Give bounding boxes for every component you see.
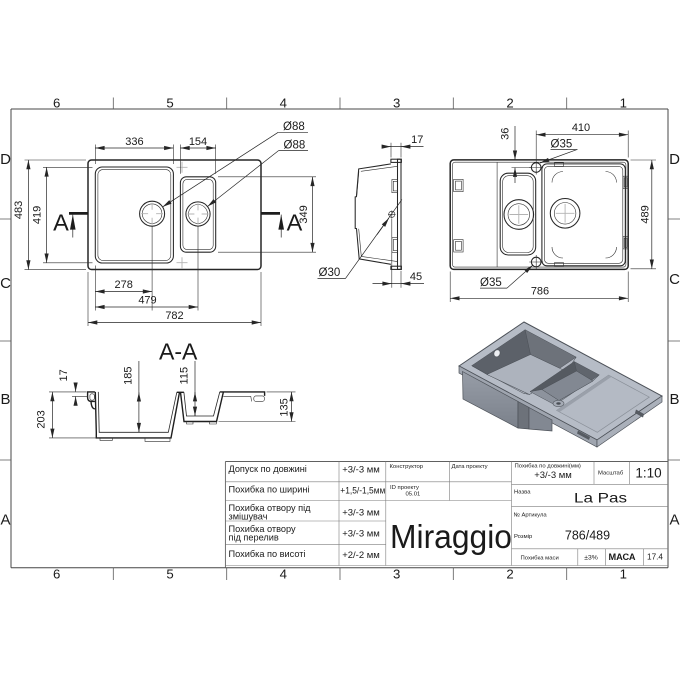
svg-text:4: 4 (280, 95, 287, 110)
svg-text:змішувач: змішувач (229, 511, 268, 521)
svg-text:2: 2 (506, 95, 513, 110)
svg-text:МАСА: МАСА (608, 552, 635, 562)
svg-text:1:10: 1:10 (635, 466, 661, 481)
svg-text:Ø88: Ø88 (284, 139, 306, 151)
svg-text:782: 782 (165, 310, 183, 322)
svg-text:479: 479 (138, 294, 156, 306)
svg-text:+3/-3 мм: +3/-3 мм (342, 507, 380, 518)
svg-text:278: 278 (115, 279, 133, 291)
svg-text:A: A (287, 210, 303, 236)
svg-text:05.01: 05.01 (406, 492, 421, 498)
svg-text:336: 336 (125, 136, 143, 148)
svg-text:Ø35: Ø35 (551, 139, 573, 151)
svg-text:Дата проекту: Дата проекту (452, 464, 488, 470)
svg-text:C: C (0, 275, 11, 292)
svg-text:Масштаб: Масштаб (598, 471, 624, 477)
svg-text:Похибка маси: Похибка маси (521, 556, 559, 562)
svg-text:+3/-3 мм: +3/-3 мм (342, 465, 380, 476)
svg-text:36: 36 (499, 128, 511, 140)
svg-text:Розмір: Розмір (514, 534, 533, 540)
svg-text:Похибка по ширині: Похибка по ширині (229, 485, 310, 495)
svg-text:154: 154 (189, 136, 207, 148)
svg-text:786/489: 786/489 (565, 529, 610, 543)
svg-text:45: 45 (410, 271, 422, 283)
svg-text:3: 3 (393, 95, 400, 110)
svg-text:Ø30: Ø30 (319, 267, 341, 279)
svg-text:3: 3 (393, 567, 400, 582)
svg-text:B: B (0, 391, 10, 408)
svg-text:419: 419 (31, 206, 43, 224)
svg-text:ID проекту: ID проекту (390, 485, 419, 491)
svg-text:185: 185 (123, 367, 135, 385)
svg-text:1: 1 (620, 95, 627, 110)
svg-text:786: 786 (531, 286, 549, 298)
svg-text:483: 483 (13, 201, 25, 219)
svg-text:410: 410 (572, 122, 590, 134)
svg-text:D: D (0, 151, 11, 168)
svg-text:Ø88: Ø88 (283, 121, 305, 133)
svg-text:+3/-3 мм: +3/-3 мм (342, 529, 380, 540)
svg-text:±3%: ±3% (584, 555, 598, 562)
svg-text:17: 17 (58, 369, 70, 381)
svg-text:1: 1 (620, 567, 627, 582)
svg-text:17.4: 17.4 (647, 553, 663, 562)
svg-text:203: 203 (36, 410, 48, 428)
svg-text:489: 489 (639, 205, 651, 223)
svg-text:Ø35: Ø35 (480, 277, 502, 289)
svg-text:+3/-3 мм: +3/-3 мм (534, 470, 572, 481)
svg-text:La Pas: La Pas (574, 490, 627, 506)
svg-text:115: 115 (179, 367, 191, 385)
svg-text:D: D (669, 151, 680, 168)
svg-text:Похибка по висоті: Похибка по висоті (229, 549, 306, 559)
svg-text:Назва: Назва (514, 490, 531, 496)
svg-text:№ Артикула: № Артикула (514, 512, 548, 519)
svg-text:A: A (669, 512, 679, 529)
svg-text:A: A (0, 512, 10, 529)
svg-text:+2/-2 мм: +2/-2 мм (342, 550, 380, 561)
svg-text:B: B (669, 391, 679, 408)
svg-text:A: A (53, 210, 69, 236)
svg-text:A-A: A-A (159, 339, 198, 365)
svg-text:135: 135 (279, 398, 291, 416)
svg-text:6: 6 (53, 567, 60, 582)
svg-text:5: 5 (166, 95, 173, 110)
svg-text:17: 17 (411, 134, 423, 146)
svg-text:під перелив: під перелив (229, 532, 279, 542)
svg-text:5: 5 (166, 567, 173, 582)
svg-text:+1,5/-1,5мм: +1,5/-1,5мм (340, 486, 385, 497)
svg-text:Конструктор: Конструктор (390, 464, 424, 470)
svg-text:4: 4 (280, 567, 287, 582)
svg-text:Похибка по довжині(мм): Похибка по довжині(мм) (515, 464, 581, 470)
svg-text:Miraggio: Miraggio (390, 518, 512, 555)
svg-text:Допуск по довжині: Допуск по довжині (229, 464, 307, 474)
svg-text:2: 2 (506, 567, 513, 582)
svg-text:6: 6 (53, 95, 60, 110)
svg-text:C: C (669, 271, 680, 288)
